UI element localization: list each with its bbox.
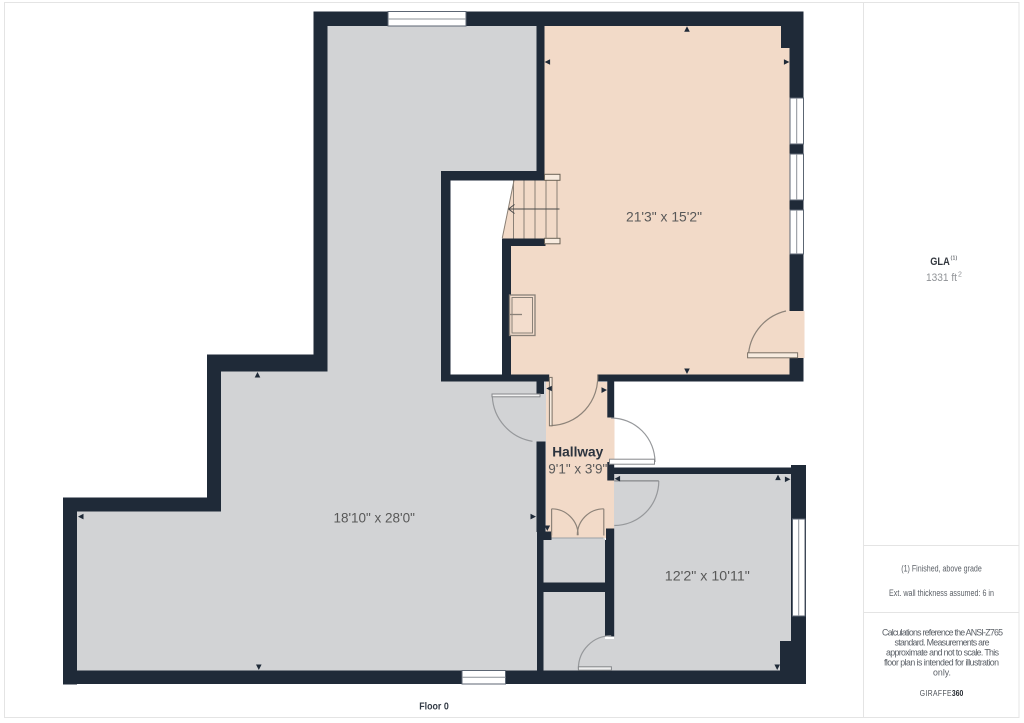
svg-text:2: 2 xyxy=(958,272,962,279)
svg-text:GLA: GLA xyxy=(930,256,950,268)
svg-text:Ext. wall thickness assumed: 6: Ext. wall thickness assumed: 6 in xyxy=(889,588,994,598)
svg-text:12'2" x 10'11": 12'2" x 10'11" xyxy=(665,568,750,584)
svg-text:9'1" x 3'9": 9'1" x 3'9" xyxy=(548,461,607,477)
svg-text:Calculations reference the ANS: Calculations reference the ANSI-Z765 xyxy=(882,628,1003,638)
svg-text:Floor 0: Floor 0 xyxy=(419,702,449,713)
svg-text:Hallway: Hallway xyxy=(552,445,604,460)
svg-text:only.: only. xyxy=(933,668,951,678)
svg-text:floor plan is intended for ill: floor plan is intended for illustration xyxy=(884,658,999,668)
svg-text:(1) Finished, above grade: (1) Finished, above grade xyxy=(901,563,982,573)
svg-text:1331 ft: 1331 ft xyxy=(926,272,957,284)
svg-text:(1): (1) xyxy=(951,255,958,261)
svg-text:standard. Measurements are: standard. Measurements are xyxy=(895,638,990,648)
svg-text:approximate and not to scale.: approximate and not to scale. This xyxy=(886,648,1000,658)
svg-text:21'3" x 15'2": 21'3" x 15'2" xyxy=(626,209,702,225)
svg-text:18'10" x 28'0": 18'10" x 28'0" xyxy=(333,509,415,525)
svg-text:GIRAFFE360: GIRAFFE360 xyxy=(920,688,964,698)
